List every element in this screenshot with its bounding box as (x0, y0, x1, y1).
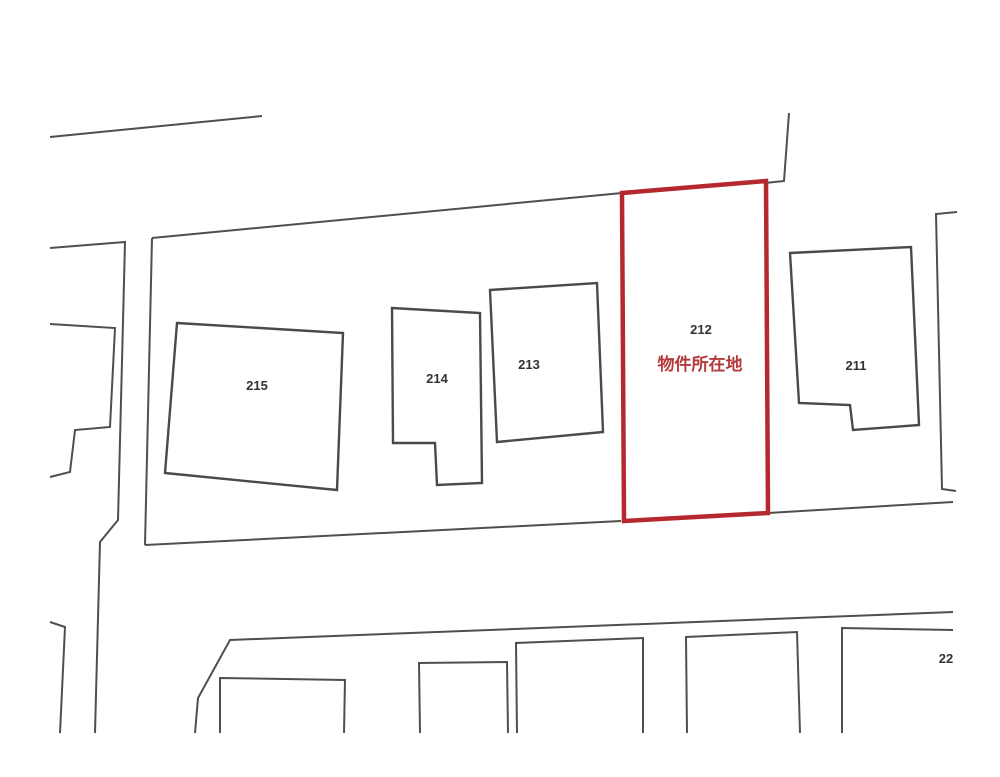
parcel-outline-211 (790, 247, 919, 430)
boundary-line-south-block-outer-edge (195, 612, 953, 733)
edge-parcel-label-22: 22 (939, 651, 953, 666)
boundary-line-south-parcel-e (842, 628, 953, 733)
boundary-line-south-parcel-d (686, 632, 800, 733)
parcel-label-212: 212 (690, 322, 712, 337)
boundary-line-west-lower-parcel-edge (50, 622, 65, 733)
boundary-line-top-left-road-line (50, 116, 262, 137)
parcel-label-215: 215 (246, 378, 268, 393)
boundary-line-south-parcel-c (516, 638, 643, 733)
parcel-outline-212-highlighted (622, 181, 768, 521)
cadastral-map-canvas: 215214213212物件所在地21122 (0, 0, 1000, 777)
parcel-label-213: 213 (518, 357, 540, 372)
boundary-line-block-west-edge (145, 238, 152, 545)
boundary-line-block-bottom-boundary-west (145, 521, 621, 545)
parcel-outline-215 (165, 323, 343, 490)
boundary-line-block-bottom-boundary-east (768, 502, 953, 513)
parcel-label-211: 211 (846, 358, 867, 373)
boundary-line-west-road-edge (50, 242, 125, 733)
cadastral-map: 215214213212物件所在地21122 (0, 0, 1000, 777)
parcel-label-214: 214 (426, 371, 448, 386)
boundary-line-northeast-corner-line (765, 113, 789, 183)
boundary-line-west-parcel-staircase (50, 324, 115, 477)
boundary-line-south-parcel-b (419, 662, 508, 733)
boundary-line-block-top-boundary (152, 193, 622, 238)
boundary-line-east-map-edge (936, 212, 957, 491)
property-location-caption: 物件所在地 (658, 354, 743, 374)
parcel-outline-213 (490, 283, 603, 442)
boundary-line-south-parcel-a (220, 678, 345, 733)
parcel-outline-214 (392, 308, 482, 485)
